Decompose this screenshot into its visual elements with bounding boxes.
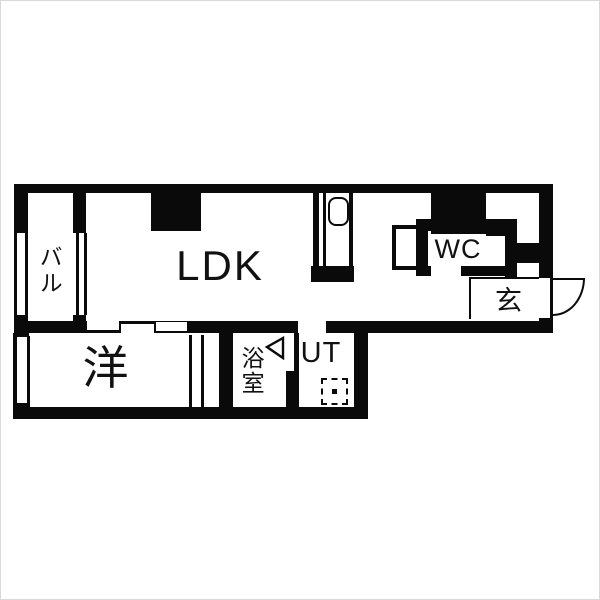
- genkan-divider-line: [469, 279, 471, 319]
- sliding-door-panel: [156, 322, 187, 331]
- genkan-step-line: [469, 277, 539, 279]
- balcony-window-right-line: [76, 233, 79, 315]
- balcony-post-right: [73, 193, 86, 233]
- kitchen-counter-base: [311, 266, 354, 282]
- room-label-bathroom: 浴室: [237, 335, 265, 407]
- kitchen-counter-divider: [323, 193, 326, 266]
- room-label-entrance: 玄: [493, 284, 525, 318]
- entrance-door-swing-icon: [553, 278, 585, 316]
- washbasin-fixture: [392, 225, 416, 270]
- partition-line: [201, 335, 204, 407]
- room-label-ldk: LDK: [161, 243, 279, 289]
- partition-line: [189, 335, 192, 407]
- wall-right-upper: [539, 184, 553, 278]
- balcony-window-left-line: [25, 233, 28, 315]
- bathroom-door-arrow-icon: [265, 336, 285, 360]
- room-label-balcony: バル: [34, 231, 64, 311]
- utility-door-opening: [298, 319, 326, 333]
- floor-plan: バル LDK WC 玄 洋 浴室 UT: [0, 0, 600, 600]
- washer-pan-dot: [332, 389, 337, 394]
- wall-bottom: [14, 407, 368, 419]
- bedroom-wall-right: [354, 321, 368, 419]
- bathroom-wall-left: [219, 333, 233, 407]
- balcony-post-left: [14, 193, 28, 233]
- balcony-window-right-line: [84, 233, 87, 315]
- wall-connector: [517, 243, 539, 263]
- wc-wall-top: [416, 219, 517, 231]
- pillar: [151, 193, 201, 231]
- bathroom-door-jamb: [286, 371, 294, 407]
- room-label-western-room: 洋: [79, 341, 133, 395]
- sliding-door-panel: [121, 324, 154, 333]
- bedroom-window-inner-line: [27, 336, 30, 407]
- sliding-door-panel: [87, 321, 119, 330]
- balcony-window-left-line: [14, 233, 17, 315]
- room-label-utility: UT: [295, 335, 347, 371]
- room-label-wc: WC: [429, 234, 487, 264]
- kitchen-counter-right: [349, 193, 353, 266]
- wc-door-opening: [431, 266, 461, 276]
- kitchen-sink-icon: [328, 197, 349, 226]
- kitchen-counter-left: [313, 193, 319, 266]
